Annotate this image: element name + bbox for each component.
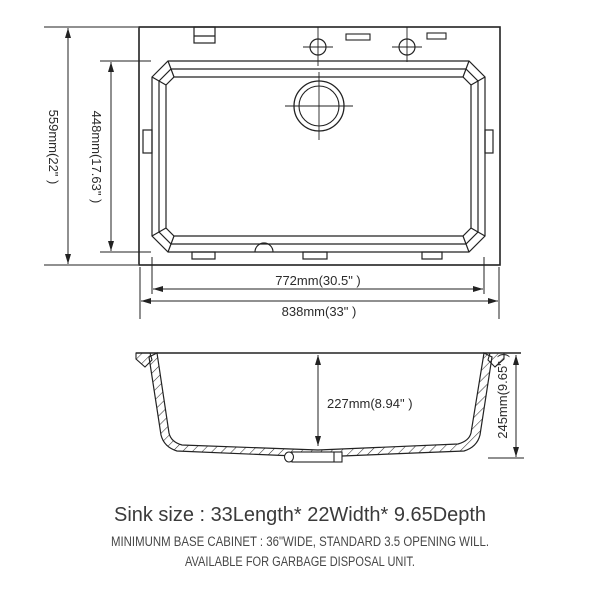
sink-spec-drawing: 559mm(22" ) 448mm(17.63" ) 772mm(30.5" )… (0, 0, 600, 600)
right-tab (485, 130, 493, 153)
drain-fitting (285, 452, 343, 462)
left-flange (136, 353, 152, 367)
dim-label-448: 448mm(17.63" ) (89, 111, 104, 204)
knockout-slot-left (346, 34, 370, 40)
corner-facet-lines (152, 61, 485, 252)
top-view: 559mm(22" ) 448mm(17.63" ) 772mm(30.5" )… (44, 27, 500, 319)
dim-label-227: 227mm(8.94" ) (327, 396, 413, 411)
cabinet-note: MINIMUNM BASE CABINET : 36"WIDE, STANDAR… (111, 534, 489, 549)
sink-outer-edge (139, 27, 500, 265)
section-view: 227mm(8.94" ) 245mm(9.65" ) (136, 353, 524, 462)
dim-label-245: 245mm(9.65" ) (495, 353, 510, 439)
dim-bowl-front-to-back (100, 61, 151, 252)
bowl-rim (152, 61, 485, 252)
dim-label-772: 772mm(30.5" ) (275, 273, 361, 288)
dim-label-838: 838mm(33" ) (282, 304, 357, 319)
sink-size-title: Sink size : 33Length* 22Width* 9.65Depth (114, 504, 486, 526)
knockout-slot-right (427, 33, 446, 39)
drawing-canvas: 559mm(22" ) 448mm(17.63" ) 772mm(30.5" )… (0, 0, 600, 600)
bowl-wall-section (149, 353, 492, 457)
left-tab (143, 130, 152, 153)
dim-label-559: 559mm(22" ) (46, 110, 61, 185)
faucet-hole-left-icon (303, 27, 333, 66)
mounting-clip-top (194, 27, 215, 43)
drain-hole-icon (285, 72, 353, 140)
disposal-note: AVAILABLE FOR GARBAGE DISPOSAL UNIT. (185, 554, 415, 569)
bottom-tabs (192, 243, 442, 259)
faucet-hole-right-icon (392, 27, 422, 62)
caption: Sink size : 33Length* 22Width* 9.65Depth… (111, 504, 489, 569)
